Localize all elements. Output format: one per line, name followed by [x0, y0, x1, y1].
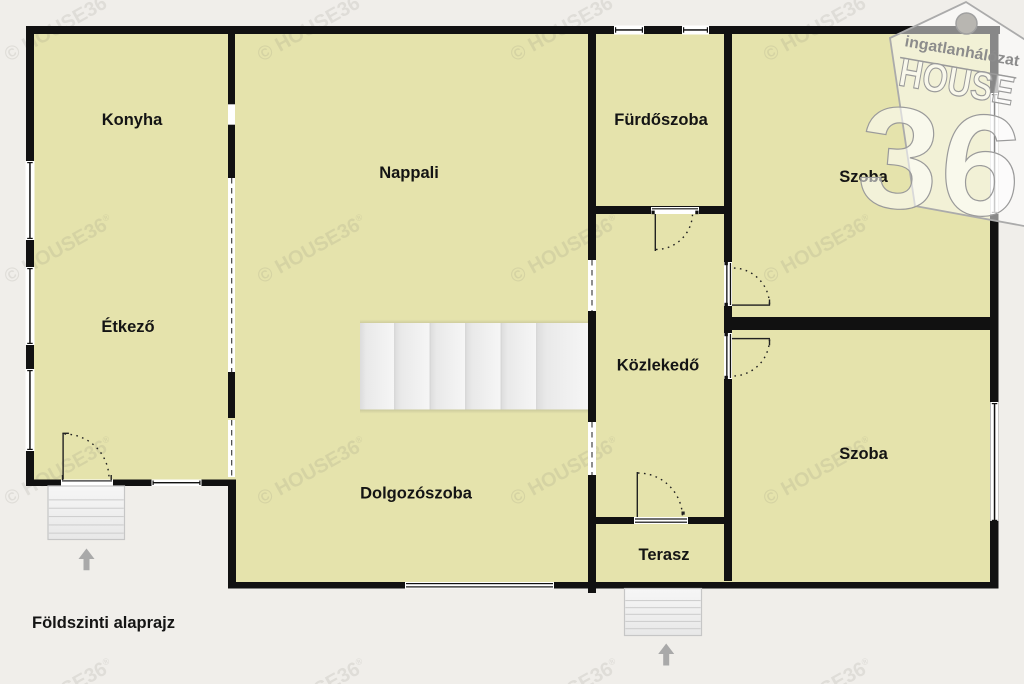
svg-text:Étkező: Étkező	[101, 317, 154, 336]
svg-text:Konyha: Konyha	[102, 111, 163, 129]
svg-text:Földszinti alaprajz: Földszinti alaprajz	[32, 614, 175, 632]
svg-text:Dolgozószoba: Dolgozószoba	[360, 485, 473, 503]
svg-text:Terasz: Terasz	[638, 546, 689, 564]
svg-text:Közlekedő: Közlekedő	[617, 357, 700, 375]
svg-text:36: 36	[852, 74, 1024, 249]
svg-text:Nappali: Nappali	[379, 164, 439, 182]
svg-text:Szoba: Szoba	[839, 445, 888, 463]
svg-text:Fürdőszoba: Fürdőszoba	[614, 111, 708, 129]
